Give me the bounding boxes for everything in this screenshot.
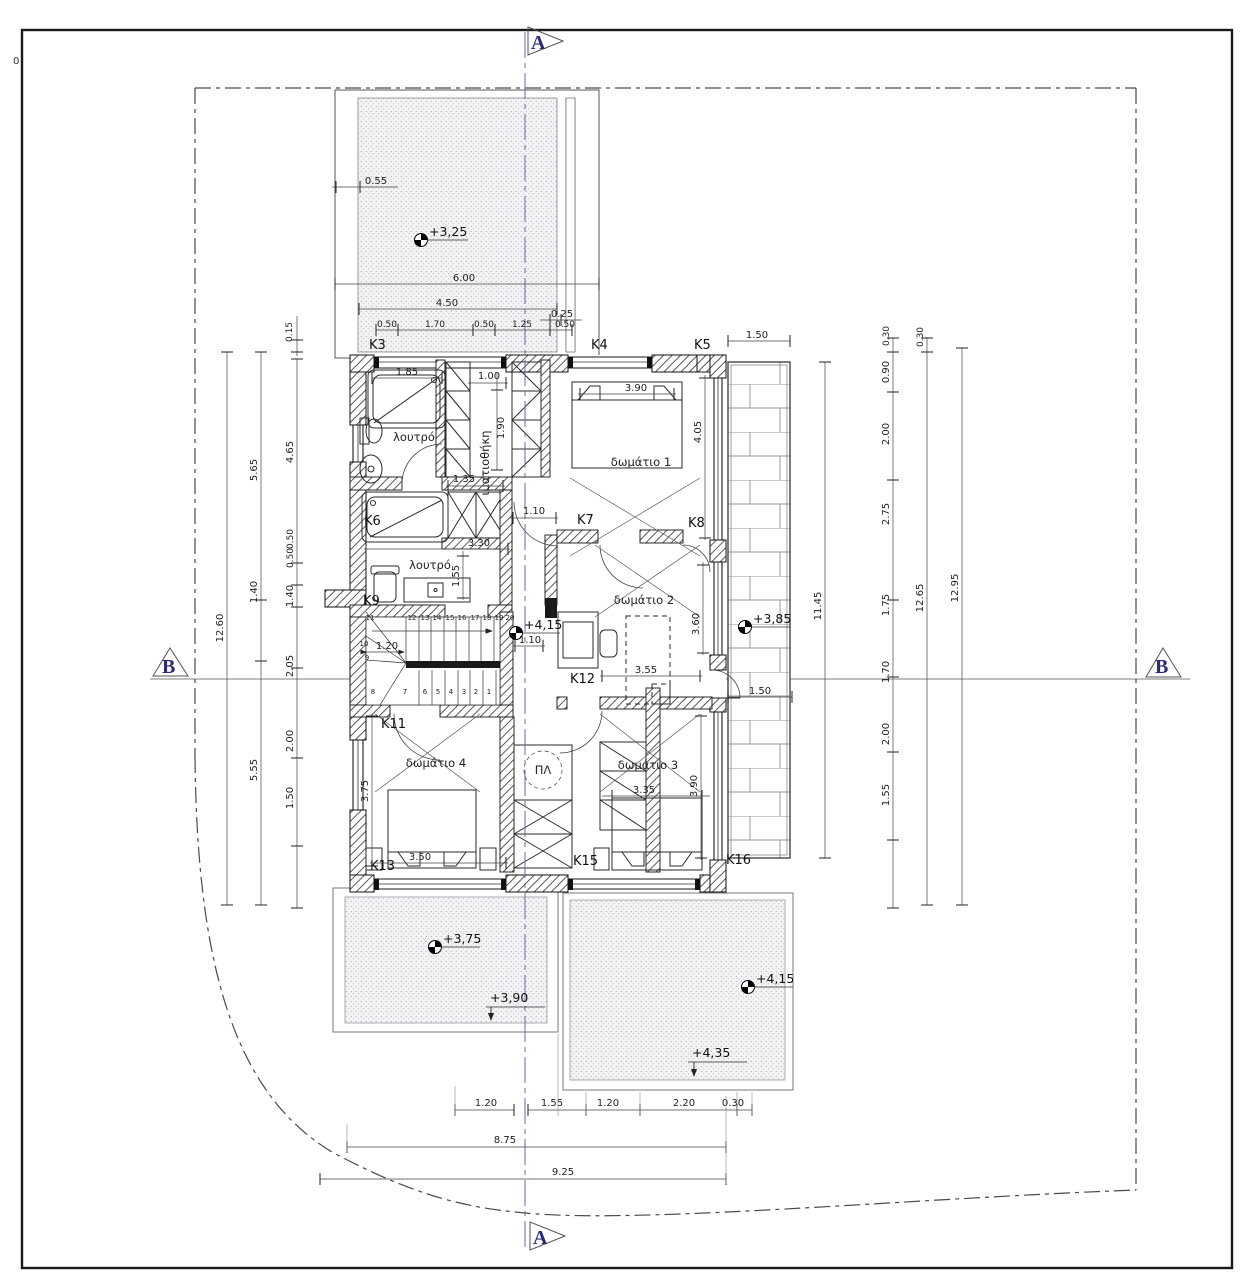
dim-top-chain: 0.50 [555, 320, 575, 330]
stair-step-label: 11 [366, 614, 375, 622]
stair-step-label: 17 [471, 614, 480, 622]
dim-hall-width: 1.35 [453, 474, 475, 485]
dim-vanity: 1.55 [451, 565, 462, 587]
stair-step-label: 14 [433, 614, 442, 622]
stair-step-label: 15 [446, 614, 455, 622]
section-letter-a-bottom: A [533, 1227, 548, 1249]
room-label-room2: δωμάτιο 2 [614, 593, 674, 607]
dim-left-mid: 1.40 [249, 581, 260, 603]
stair-railing [406, 661, 500, 668]
right-balcony [728, 362, 790, 858]
dim-left-mid: 5.55 [249, 759, 260, 781]
dim-top-balcony: 1.50 [746, 330, 768, 341]
dim-top-chain: 1.70 [425, 320, 445, 330]
dim-top-chain: 1.25 [512, 320, 532, 330]
dim-door2: 1.10 [519, 635, 541, 646]
stair-step-label: 7 [403, 688, 407, 696]
floor-plan-sheet: 0 [0, 0, 1244, 1280]
level-text: +3,75 [443, 931, 481, 946]
dim-bottom-chain: 2.20 [673, 1098, 695, 1109]
dim-bath2-width: 3.30 [468, 538, 490, 549]
opening-k12: K12 [570, 672, 595, 687]
dim-tub: 1.85 [396, 367, 418, 378]
section-letter-a-top: A [531, 32, 546, 54]
room-label-bath1: λουτρό [393, 430, 435, 444]
dim-bottom-total: 9.25 [552, 1167, 574, 1178]
opening-k16: K16 [726, 853, 751, 868]
dim-top-offset: 0.15 [285, 322, 295, 342]
dim-room1-depth: 4.05 [693, 421, 704, 443]
stair-step-label: 13 [421, 614, 430, 622]
dim-left-inner: 1.50 [285, 787, 296, 809]
room-label-room1: δωμάτιο 1 [611, 455, 671, 469]
dim-left-inner: 2.00 [285, 730, 296, 752]
stair-step-label: 10 [360, 640, 369, 648]
stair-step-label: 8 [371, 688, 375, 696]
room-label-room4: δωμάτιο 4 [406, 756, 466, 770]
level-text: +3,25 [429, 224, 467, 239]
dim-left-total: 12.60 [215, 614, 226, 643]
dim-door1: 1.10 [523, 506, 545, 517]
dim-stair-width: 1.20 [376, 641, 398, 652]
dim-left-mid: 5.65 [249, 459, 260, 481]
dim-wardrobe-depth: 1.90 [496, 417, 507, 439]
level-text: +4,15 [756, 971, 794, 986]
stair-step-label: 16 [458, 614, 467, 622]
dim-left-inner: 0.50 [286, 529, 296, 549]
stair-step-label: 20 [506, 614, 515, 622]
dim-right-chain: 1.55 [881, 784, 892, 806]
dim-right-mid: 12.65 [915, 584, 926, 613]
floor-plan-drawing: 0 [0, 0, 1244, 1280]
room-label-bath2: λουτρό [409, 558, 451, 572]
dim-room2-depth: 3.60 [691, 613, 702, 635]
dim-balcony-height: 11.45 [813, 592, 824, 621]
dim-right-chain: 2.75 [881, 503, 892, 525]
dim-left-inner: 2.05 [285, 655, 296, 677]
dim-bottom-chain: 0.30 [722, 1098, 744, 1109]
dim-right-chain: 0.30 [882, 326, 892, 346]
stair-step-label: 4 [449, 688, 454, 696]
opening-k5: K5 [694, 338, 711, 353]
dim-right-mid-offset: 0.30 [916, 327, 926, 347]
level-text: +4,35 [692, 1045, 730, 1060]
stair-step-label: 18 [483, 614, 492, 622]
dim-bottom-chain: 1.20 [475, 1098, 497, 1109]
dim-bed1: 3.90 [625, 383, 647, 394]
staircase: 11 12 13 14 15 16 17 18 19 20 10 9 8 7 6… [360, 612, 515, 705]
opening-k11: K11 [381, 717, 406, 732]
opening-k4: K4 [591, 338, 608, 353]
stair-step-label: 6 [423, 688, 428, 696]
dim-bottom-chain: 1.55 [541, 1098, 563, 1109]
level-text: +4,15 [524, 617, 562, 632]
terrace-left [333, 888, 558, 1032]
dim-bottom-sub: 8.75 [494, 1135, 516, 1146]
section-letter-b-left: B [162, 656, 175, 678]
dim-bed2: 3.55 [635, 665, 657, 676]
dim-right-chain: 1.70 [881, 661, 892, 683]
stair-step-label: 19 [495, 614, 504, 622]
dim-top-inner: 4.50 [436, 298, 458, 309]
opening-k8: K8 [688, 516, 705, 531]
stair-step-label: 2 [474, 688, 478, 696]
dim-balcony-door: 1.50 [749, 686, 771, 697]
terrace-right [563, 893, 793, 1090]
room-label-shaft: ΠΛ [535, 763, 552, 777]
dim-right-chain: 0.90 [881, 361, 892, 383]
level-text: +3,85 [753, 611, 791, 626]
opening-k3: K3 [369, 338, 386, 353]
stair-step-label: 9 [365, 654, 369, 662]
dim-right-chain: 2.00 [881, 423, 892, 445]
dim-left-inner: 1.40 [285, 585, 296, 607]
dim-right-outer: 12.95 [950, 574, 961, 603]
dim-right-chain: 2.00 [881, 723, 892, 745]
stair-step-label: 5 [436, 688, 440, 696]
dim-bottom-chain: 1.20 [597, 1098, 619, 1109]
level-text: +3,90 [490, 990, 528, 1005]
dim-room3-depth: 3.90 [689, 775, 700, 797]
dim-right-chain: 1.75 [881, 594, 892, 616]
dim-room4-depth: 3.75 [360, 780, 371, 802]
stair-step-label: 1 [487, 688, 491, 696]
dim-top-step: 0.25 [551, 309, 573, 320]
opening-k9: K9 [363, 594, 380, 609]
stair-step-label: 12 [408, 614, 417, 622]
margin-label: 0 [13, 56, 19, 67]
dim-left-inner: 4.65 [285, 441, 296, 463]
opening-k15: K15 [573, 854, 598, 869]
dim-bed4: 3.50 [409, 852, 431, 863]
stair-step-label: 3 [462, 688, 466, 696]
opening-k6: K6 [364, 514, 381, 529]
dim-bed3: 3.35 [633, 785, 655, 796]
dim-top-total: 6.00 [453, 273, 475, 284]
section-letter-b-right: B [1155, 656, 1168, 678]
opening-k7: K7 [577, 513, 594, 528]
dim-top-wall: 0.55 [365, 176, 387, 187]
dim-top-chain: 0.50 [474, 320, 494, 330]
room-label-room3: δωμάτιο 3 [618, 758, 678, 772]
dim-top-chain: 0.50 [377, 320, 397, 330]
dim-left-inner: 0.50 [286, 548, 296, 568]
